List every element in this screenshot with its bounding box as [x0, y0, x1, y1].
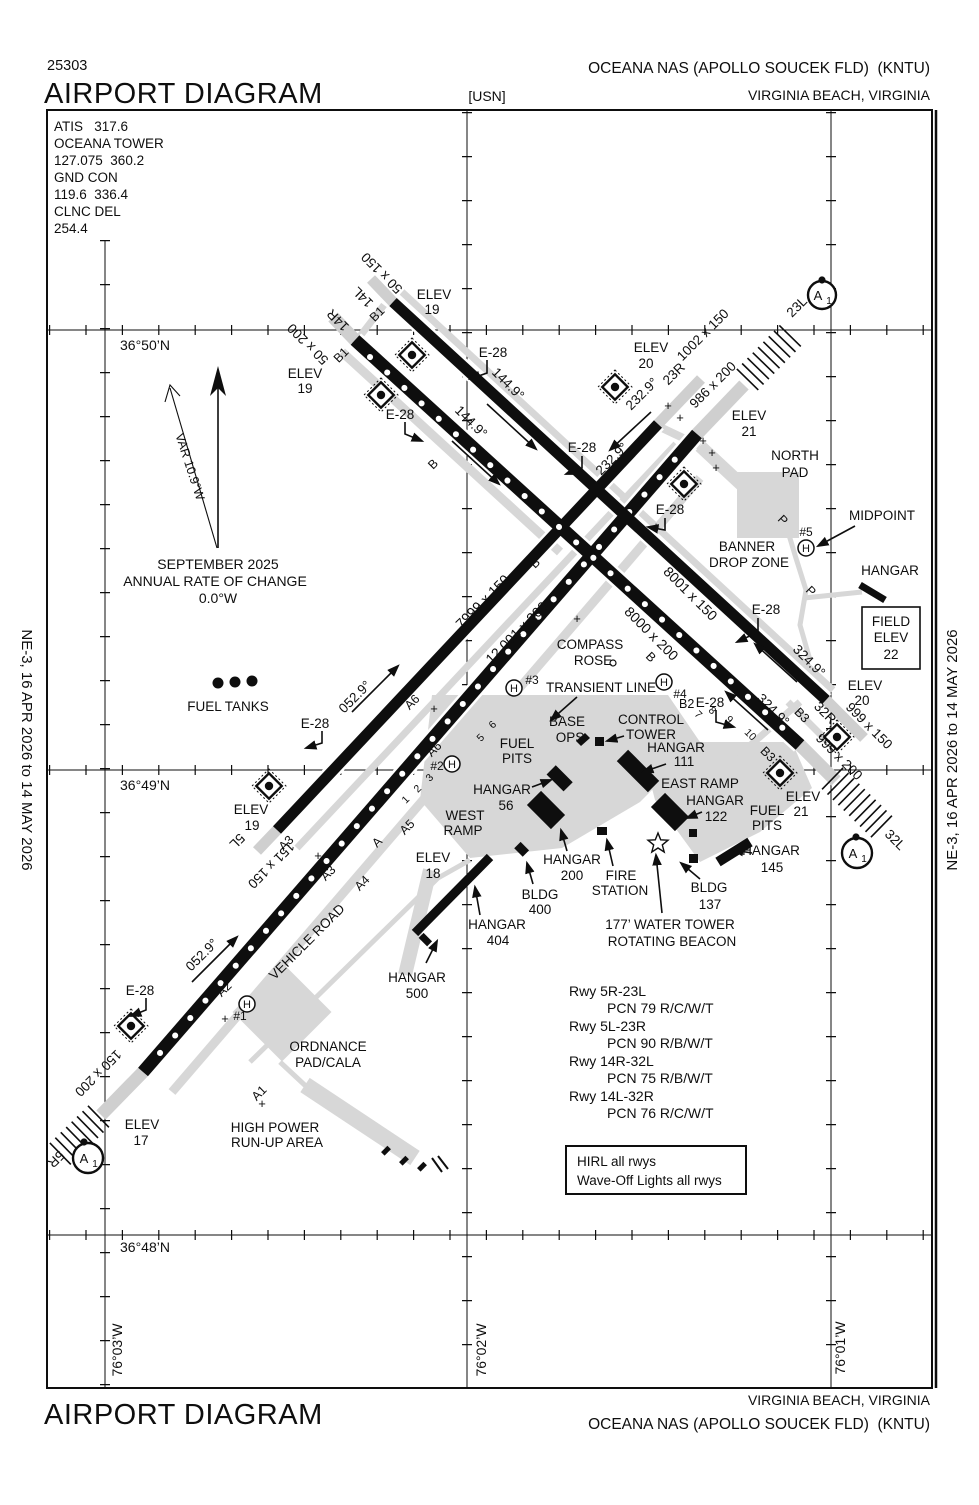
lon-76-01: 76°01’W [832, 1321, 848, 1375]
airport-city-top: VIRGINIA BEACH, VIRGINIA [748, 87, 931, 103]
svg-text:+: + [699, 433, 707, 448]
lighting-box: HIRL all rwys Wave-Off Lights all rwys [566, 1146, 746, 1194]
svg-text:PITS: PITS [752, 818, 782, 833]
pcn-val: PCN 76 R/C/W/T [607, 1105, 714, 1121]
branch-label: [USN] [468, 88, 505, 104]
svg-text:+: + [708, 445, 716, 460]
airport-name-bottom: OCEANA NAS (APOLLO SOUCEK FLD) (KNTU) [588, 1416, 930, 1433]
comm-atis: ATIS 317.6 [54, 119, 128, 134]
airport-diagram-page: H H H H H A 1 A 1 A 1 [0, 0, 979, 1500]
svg-text:+: + [221, 1011, 229, 1026]
lat-36-48: 36°48’N [120, 1239, 170, 1255]
svg-text:+: + [664, 398, 672, 413]
elev-23r: ELEV [732, 408, 767, 423]
elev-23l: ELEV [634, 340, 669, 355]
airport-diagram-canvas: H H H H H A 1 A 1 A 1 [0, 0, 979, 1500]
effective-dates-right: NE-3, 16 APR 2026 to 14 MAY 2026 [944, 629, 961, 870]
svg-text:+: + [676, 410, 684, 425]
bldg-137-building [689, 854, 698, 863]
comm-clnc-freq: 254.4 [54, 221, 88, 236]
svg-text:+: + [652, 519, 660, 534]
svg-text:PAD/CALA: PAD/CALA [295, 1055, 361, 1070]
e28-label: E-28 [126, 983, 155, 998]
pcn-val: PCN 75 R/B/W/T [607, 1070, 713, 1086]
helipad-h: H [510, 683, 518, 695]
helipad-1-number: #1 [233, 1009, 247, 1023]
base-ops-label: BASE [549, 714, 585, 729]
field-elev-box: FIELD ELEV 22 [862, 607, 920, 669]
svg-text:21: 21 [793, 804, 808, 819]
twy-b2-label: B2 [679, 697, 694, 711]
lon-76-02: 76°02’W [473, 1323, 489, 1377]
helipad-5-number: #5 [799, 525, 813, 539]
fire-station-label: FIRE [606, 868, 637, 883]
banner-drop-zone-label: BANNER [719, 539, 776, 554]
bldg-137-label: BLDG [691, 880, 728, 895]
a1-letter: A [849, 846, 858, 861]
pcn-rwy: Rwy 14R-32L [569, 1053, 654, 1069]
svg-text:PITS: PITS [502, 751, 532, 766]
elev-5r: ELEV [125, 1117, 160, 1132]
svg-text:400: 400 [529, 902, 552, 917]
helipad-2-number: #2 [430, 759, 444, 773]
page-title-bottom: AIRPORT DIAGRAM [44, 1399, 323, 1431]
comm-gnd-name: GND CON [54, 170, 118, 185]
elev-5l: ELEV [234, 802, 269, 817]
a1-sub: 1 [826, 296, 832, 307]
comm-tower-name: OCEANA TOWER [54, 136, 164, 151]
hangar-404-label: HANGAR [468, 917, 526, 932]
svg-text:ROSE: ROSE [574, 653, 612, 668]
e28-label: E-28 [656, 502, 685, 517]
svg-text:STATION: STATION [592, 883, 649, 898]
elev-32r: ELEV [848, 678, 883, 693]
helipad-h: H [802, 543, 810, 555]
elev-14l: ELEV [417, 287, 452, 302]
svg-text:19: 19 [297, 381, 312, 396]
comm-clnc-name: CLNC DEL [54, 204, 121, 219]
e28-label: E-28 [568, 440, 597, 455]
transient-line-label: TRANSIENT LINE [546, 680, 656, 695]
fire-station-building [597, 827, 607, 835]
a1-sub: 1 [861, 854, 867, 865]
svg-text:PAD: PAD [782, 465, 809, 480]
lon-76-03: 76°03’W [109, 1323, 125, 1377]
e28-label: E-28 [752, 602, 781, 617]
svg-text:200: 200 [561, 868, 584, 883]
svg-text:17: 17 [133, 1133, 148, 1148]
variation-value: 0.0°W [199, 590, 238, 606]
comm-gnd-freq: 119.6 336.4 [54, 187, 129, 202]
svg-text:19: 19 [244, 818, 259, 833]
svg-text:18: 18 [425, 866, 440, 881]
svg-text:DROP ZONE: DROP ZONE [709, 555, 789, 570]
midpoint-label: MIDPOINT [849, 508, 915, 523]
svg-text:+: + [573, 611, 581, 626]
hangar-ne-label: HANGAR [861, 563, 919, 578]
pcn-rwy: Rwy 14L-32R [569, 1088, 654, 1104]
helipad-3: H [506, 680, 522, 696]
a1-letter: A [814, 288, 823, 303]
bldg-400-label: BLDG [522, 887, 559, 902]
svg-text:+: + [430, 701, 438, 716]
hangar-56-label: HANGAR [473, 782, 531, 797]
pcn-val: PCN 79 R/C/W/T [607, 1000, 714, 1016]
effective-dates-left: NE-3, 16 APR 2026 to 14 MAY 2026 [18, 629, 35, 870]
hangar-200-label: HANGAR [543, 852, 601, 867]
helipad-5: H [798, 540, 814, 556]
control-tower-label: CONTROL [618, 712, 684, 727]
comm-tower-freq: 127.075 360.2 [54, 153, 144, 168]
fuel-pits-west-label: FUEL [500, 736, 535, 751]
e28-label: E-28 [479, 345, 508, 360]
runup-area-label: HIGH POWER [231, 1120, 320, 1135]
helipad-h: H [660, 677, 668, 689]
hangar-145-label: HANGAR [742, 843, 800, 858]
svg-text:RAMP: RAMP [443, 823, 482, 838]
field-elev-line1: FIELD [872, 614, 911, 629]
page-title: AIRPORT DIAGRAM [44, 78, 323, 110]
airport-city-bottom: VIRGINIA BEACH, VIRGINIA [748, 1392, 931, 1408]
svg-text:122: 122 [705, 809, 728, 824]
helipad-h: H [448, 759, 456, 771]
elev-west-ramp: ELEV [416, 850, 451, 865]
svg-text:19: 19 [424, 302, 439, 317]
lighting-line1: HIRL all rwys [577, 1154, 656, 1169]
chart-number: 25303 [47, 58, 87, 74]
e28-label: E-28 [301, 716, 330, 731]
hangar-500-label: HANGAR [388, 970, 446, 985]
lat-36-50: 36°50’N [120, 337, 170, 353]
fuel-pits-east-label: FUEL [750, 803, 785, 818]
lighting-line2: Wave-Off Lights all rwys [577, 1173, 722, 1188]
helipad-3-number: #3 [525, 673, 539, 687]
svg-text:137: 137 [699, 897, 722, 912]
pcn-val: PCN 90 R/B/W/T [607, 1035, 713, 1051]
svg-text:111: 111 [674, 754, 695, 769]
pcn-rwy: Rwy 5L-23R [569, 1018, 646, 1034]
svg-text:500: 500 [406, 986, 429, 1001]
east-ramp-label: EAST RAMP [661, 776, 739, 791]
svg-text:+: + [314, 848, 322, 863]
lat-36-49: 36°49’N [120, 777, 170, 793]
field-elev-line2: ELEV [874, 630, 909, 645]
svg-text:RUN-UP AREA: RUN-UP AREA [231, 1135, 323, 1150]
control-tower-building [595, 737, 604, 746]
north-pad-label: NORTH [771, 448, 819, 463]
helipad-4: H [656, 674, 672, 690]
svg-text:OPS: OPS [556, 730, 585, 745]
water-tower-label: 177’ WATER TOWER [605, 917, 735, 932]
west-ramp-label: WEST [446, 808, 485, 823]
ordnance-pad-label: ORDNANCE [289, 1039, 366, 1054]
a1-sub: 1 [92, 1159, 98, 1170]
elev-14r: ELEV [288, 366, 323, 381]
helipad-2: H [444, 756, 460, 772]
compass-rose-label: COMPASS [557, 637, 624, 652]
variation-date: SEPTEMBER 2025 [157, 556, 279, 572]
elev-32l: ELEV [786, 789, 821, 804]
svg-text:145: 145 [761, 860, 784, 875]
svg-text:+: + [712, 460, 720, 475]
e28-label: E-28 [386, 407, 415, 422]
hangar-111-label: HANGAR [647, 740, 705, 755]
svg-text:56: 56 [498, 798, 513, 813]
hangar-122-label: HANGAR [686, 793, 744, 808]
svg-text:+: + [258, 1096, 266, 1111]
svg-text:404: 404 [487, 933, 510, 948]
pcn-rwy: Rwy 5R-23L [569, 983, 646, 999]
field-elev-value: 22 [883, 647, 898, 662]
svg-text:ROTATING BEACON: ROTATING BEACON [608, 934, 737, 949]
fuel-tanks-label: FUEL TANKS [187, 699, 269, 714]
svg-text:20: 20 [638, 356, 653, 371]
svg-text:21: 21 [741, 424, 756, 439]
airport-name-top: OCEANA NAS (APOLLO SOUCEK FLD) (KNTU) [588, 60, 930, 77]
variation-rate: ANNUAL RATE OF CHANGE [123, 573, 307, 589]
svg-text:20: 20 [854, 693, 869, 708]
a1-letter: A [80, 1151, 89, 1166]
